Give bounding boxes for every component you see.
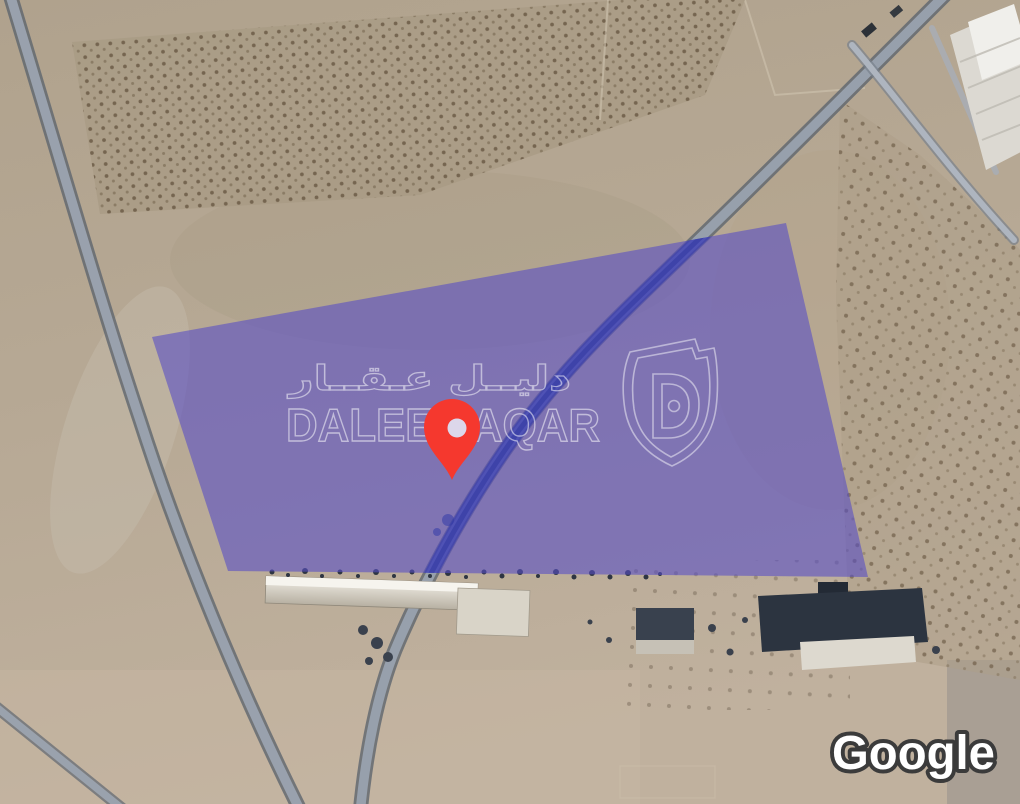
map-viewport[interactable]: دليــل عـقــار DALEEL AQAR Google (0, 0, 1020, 804)
pin-hole (448, 419, 467, 438)
google-logo[interactable]: Google (832, 727, 995, 780)
small-white-building (456, 588, 530, 636)
watermark-arabic-text: دليــل عـقــار (286, 359, 571, 399)
small-dark-building (636, 608, 694, 654)
